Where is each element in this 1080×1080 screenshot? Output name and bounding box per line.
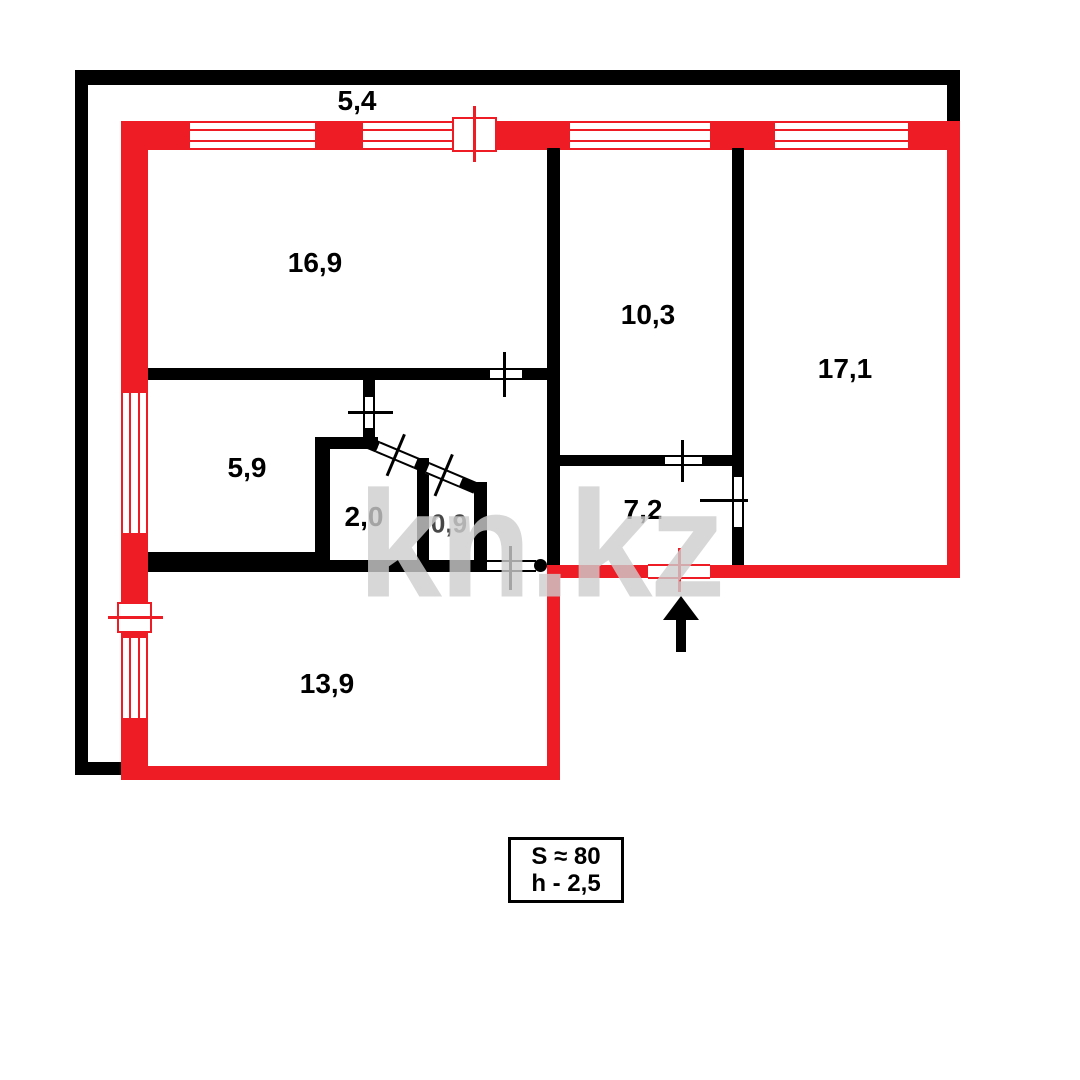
window-left-2 bbox=[121, 638, 148, 718]
balcony-dimension-label: 5,4 bbox=[338, 85, 377, 117]
balcony-frame-left bbox=[75, 70, 88, 775]
info-ceiling-height: h - 2,5 bbox=[531, 870, 600, 897]
balcony-frame-bottom bbox=[75, 762, 121, 775]
door-corridor-stop-dot bbox=[534, 559, 547, 572]
wall-right-vertical-a bbox=[732, 148, 744, 477]
room-label-toilet: 0,9 bbox=[431, 509, 467, 540]
room-label-bedroom-right: 17,1 bbox=[818, 353, 873, 385]
door-living-room-tick bbox=[503, 352, 506, 397]
balcony-door-top-tick bbox=[473, 106, 476, 162]
room-label-bedroom-top: 10,3 bbox=[621, 299, 676, 331]
entrance-arrow-shaft bbox=[676, 618, 686, 652]
wall-hallway-top-b bbox=[702, 455, 744, 466]
window-top-2 bbox=[363, 121, 452, 150]
entrance-arrow-icon bbox=[663, 596, 699, 620]
wall-right-vertical-b bbox=[732, 527, 744, 565]
wall-kitchen-bottom-thick bbox=[148, 552, 317, 572]
wall-kitchen-right-a bbox=[363, 380, 375, 397]
window-top-4 bbox=[775, 121, 908, 150]
door-bedroom-right-tick bbox=[700, 499, 748, 502]
door-kitchen-tick bbox=[348, 411, 393, 414]
room-bottom-right-wall bbox=[547, 565, 560, 780]
balcony-frame-top bbox=[75, 70, 960, 85]
wall-bathroom-toilet-divider bbox=[417, 458, 429, 572]
floor-plan: 5,4 16,9 10,3 17,1 5,9 2,0 0,9 7,2 13,9 … bbox=[0, 0, 1080, 1080]
window-top-1 bbox=[190, 121, 315, 150]
wall-living-bottom-a bbox=[148, 368, 490, 380]
balcony-door-left-tick bbox=[108, 616, 163, 619]
info-total-area: S ≈ 80 bbox=[531, 843, 600, 870]
wall-hallway-top-a bbox=[560, 455, 665, 466]
door-corridor-tick bbox=[509, 546, 512, 590]
room-label-bottom: 13,9 bbox=[300, 668, 355, 700]
balcony-frame-right bbox=[947, 70, 960, 125]
wall-bathroom-left bbox=[315, 437, 330, 572]
window-left-1 bbox=[121, 393, 148, 533]
info-box: S ≈ 80 h - 2,5 bbox=[508, 837, 624, 903]
entrance-door-tick bbox=[678, 548, 681, 592]
wall-bathroom-bottom bbox=[317, 560, 429, 572]
room-label-hallway: 7,2 bbox=[624, 494, 663, 526]
entrance-wall bbox=[547, 565, 960, 578]
window-top-3 bbox=[570, 121, 710, 150]
wall-center-vertical bbox=[547, 148, 560, 565]
wall-toilet-right bbox=[474, 482, 487, 572]
door-bedroom-top-tick bbox=[681, 440, 684, 482]
door-living-room bbox=[490, 368, 522, 380]
room-label-bathroom: 2,0 bbox=[345, 501, 384, 533]
wall-toilet-bottom bbox=[429, 560, 487, 572]
room-label-kitchen: 5,9 bbox=[228, 452, 267, 484]
exterior-wall-bottom bbox=[121, 766, 560, 780]
room-label-living: 16,9 bbox=[288, 247, 343, 279]
exterior-wall-right bbox=[947, 121, 960, 578]
door-bedroom-right bbox=[732, 477, 744, 527]
